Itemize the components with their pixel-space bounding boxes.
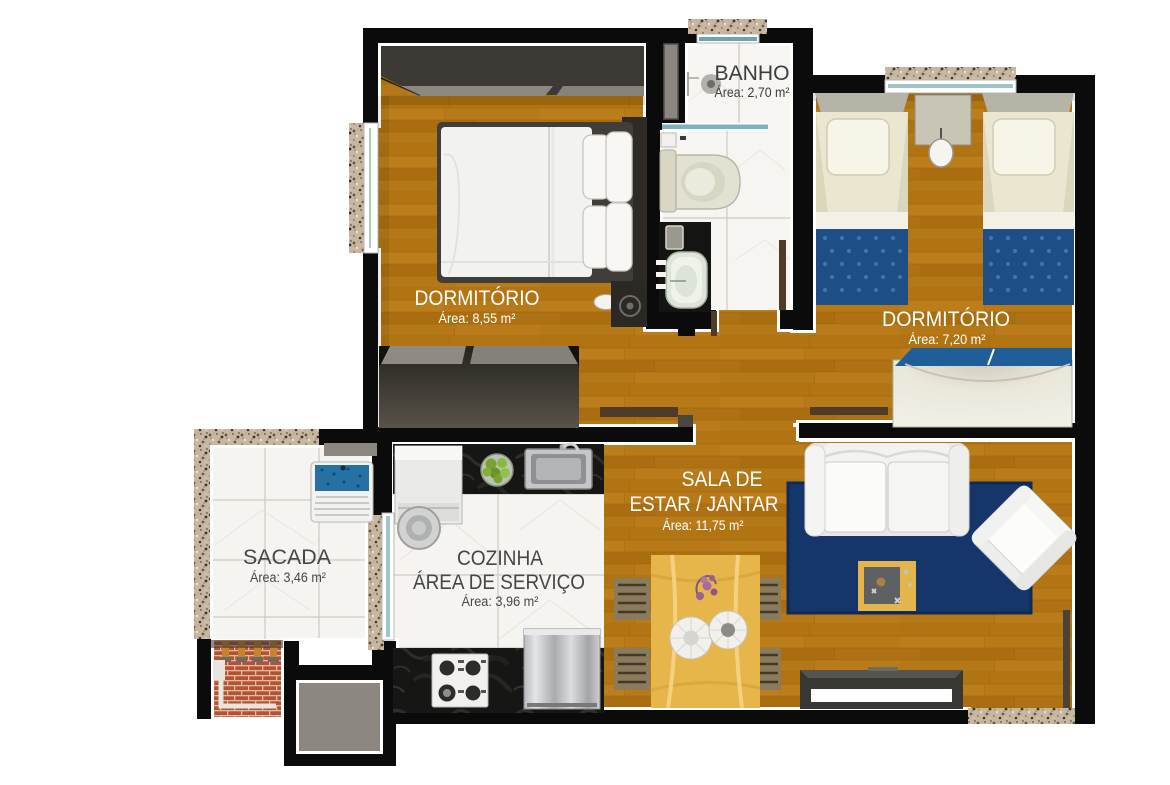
svg-text:COZINHA: COZINHA	[457, 547, 543, 570]
svg-text:Área: 11,75 m²: Área: 11,75 m²	[663, 518, 744, 533]
svg-text:DORMITÓRIO: DORMITÓRIO	[415, 287, 540, 310]
svg-text:ÁREA DE SERVIÇO: ÁREA DE SERVIÇO	[413, 571, 585, 594]
svg-text:BANHO: BANHO	[715, 62, 790, 85]
svg-text:DORMITÓRIO: DORMITÓRIO	[882, 308, 1010, 331]
svg-text:SALA DE: SALA DE	[682, 468, 763, 491]
svg-text:Área: 3,96 m²: Área: 3,96 m²	[462, 594, 539, 609]
svg-text:Área: 3,46 m²: Área: 3,46 m²	[250, 570, 326, 585]
svg-text:ESTAR / JANTAR: ESTAR / JANTAR	[630, 493, 779, 516]
svg-text:Área: 7,20 m²: Área: 7,20 m²	[909, 332, 986, 347]
svg-text:Área: 2,70 m²: Área: 2,70 m²	[715, 85, 790, 100]
svg-text:SACADA: SACADA	[243, 546, 331, 569]
svg-text:Área: 8,55 m²: Área: 8,55 m²	[439, 311, 516, 326]
